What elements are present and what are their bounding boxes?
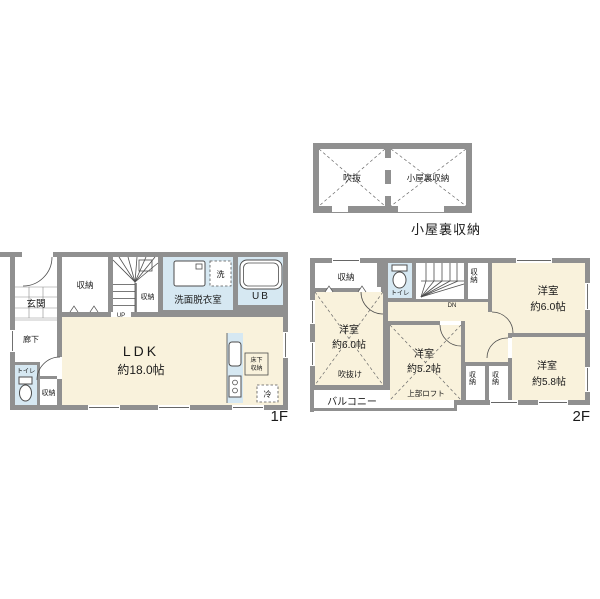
first-floor-plan: 玄関 収納 収納 UP 洗面脱衣室 洗 UB 廊下 トイレ 収納 LDK 約18… — [0, 252, 288, 425]
balcony-railing — [314, 408, 457, 411]
nw-closet-label: 収納 — [337, 272, 354, 282]
underfloor-storage-label: 収納 — [250, 364, 262, 372]
west-bedroom-label: 洋室 — [339, 323, 359, 336]
ldk-door-opening — [57, 357, 62, 379]
f2-floor-label: 2F — [572, 408, 590, 425]
interior-wall — [15, 362, 37, 365]
ldk-size-label: 約18.0帖 — [117, 362, 164, 377]
interior-wall — [37, 362, 40, 405]
washer-label: 洗 — [217, 269, 225, 279]
se-bedroom-size: 約5.8帖 — [532, 375, 566, 388]
toilet-icon-2f — [392, 265, 407, 288]
balcony-wall — [454, 405, 457, 411]
washroom-label: 洗面脱衣室 — [174, 294, 222, 306]
toilet-label-2f: トイレ — [391, 290, 410, 297]
ne-bedroom-size: 約6.0帖 — [530, 300, 566, 313]
refrigerator-label: 冷 — [264, 389, 272, 399]
unit-bath-label: UB — [252, 291, 270, 302]
washbasin-icon — [174, 261, 205, 286]
second-floor-plan: 収納 トイレ DN 収納 洋室 約6.0帖 吹抜け 洋室 約6.0帖 洋室 約5… — [310, 258, 590, 425]
west-bedroom-note: 吹抜け — [338, 369, 362, 379]
mid-bedroom-door-opening — [440, 321, 461, 325]
balcony-label: バルコニー — [327, 396, 377, 408]
west-bedroom-size: 約6.0帖 — [332, 338, 366, 351]
interior-wall — [40, 376, 57, 379]
f1-floor-label: 1F — [270, 408, 288, 425]
se-bedroom-label: 洋室 — [537, 359, 557, 372]
toilet-icon-1f — [19, 377, 32, 401]
stair-closet-label: 収納 — [141, 292, 155, 301]
attic-plan: 吹抜 小屋裏収納 小屋裏収納 — [313, 143, 481, 237]
attic-plan-title: 小屋裏収納 — [411, 222, 481, 237]
south-closet-label-2: 収納 — [492, 371, 500, 386]
stairs-up-label: UP — [117, 313, 125, 319]
kitchen-sink-icon — [229, 342, 241, 366]
floor-plan-drawing: 吹抜 小屋裏収納 小屋裏収納 — [0, 0, 600, 599]
underfloor-storage-label: 床下 — [250, 356, 262, 364]
attic-void-label: 吹抜 — [343, 172, 361, 183]
stove-icon — [229, 376, 241, 397]
mid-bedroom-size: 約5.2帖 — [407, 362, 441, 375]
ldk-label: LDK — [123, 343, 159, 359]
mid-bedroom-note: 上部ロフト — [407, 388, 445, 398]
se-bedroom-door-opening — [508, 338, 512, 358]
attic-wall-opening — [332, 206, 348, 212]
entrance-door-opening — [22, 252, 53, 257]
bathtub-icon — [240, 260, 282, 289]
interior-wall — [488, 302, 492, 312]
toilet-label-1f: トイレ — [17, 368, 36, 375]
top-closet-label: 収納 — [76, 280, 93, 290]
attic-wall-opening — [398, 206, 444, 212]
stair-closet-label-2f: 収納 — [469, 268, 478, 285]
ne-bedroom-label: 洋室 — [538, 284, 559, 297]
attic-divider-opening — [385, 184, 391, 196]
south-closet-label-1: 収納 — [469, 371, 477, 386]
f2-corridor — [465, 302, 508, 362]
mid-bedroom-label: 洋室 — [414, 347, 434, 360]
hall-closet-label: 収納 — [42, 388, 56, 397]
floor-plan-page: 吹抜 小屋裏収納 小屋裏収納 — [0, 0, 600, 599]
balcony-wall — [310, 405, 314, 412]
entrance-label: 玄関 — [26, 298, 45, 310]
stairs-dn-label: DN — [448, 303, 457, 309]
hallway-label: 廊下 — [23, 334, 39, 344]
attic-storage-label: 小屋裏収納 — [407, 173, 450, 183]
attic-divider-opening — [385, 158, 391, 170]
